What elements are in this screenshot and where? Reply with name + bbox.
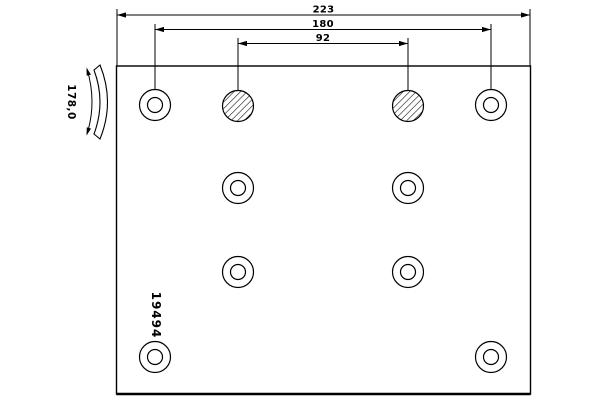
rivet-hole-outer bbox=[223, 257, 254, 288]
rivet-hole-outer bbox=[223, 173, 254, 204]
technical-drawing-canvas: 223 180 92 178,0 1949 bbox=[0, 0, 600, 400]
rivet-hole-outer bbox=[476, 342, 507, 373]
dimension-label-inner: 92 bbox=[316, 33, 331, 44]
dimension-arrow bbox=[117, 12, 126, 17]
dimension-arrow bbox=[482, 27, 491, 32]
curvature-symbol: 178,0 bbox=[65, 65, 108, 139]
dimension-arrow bbox=[238, 41, 247, 46]
dimension-arrow bbox=[521, 12, 530, 17]
rivet-hole-inner bbox=[231, 265, 246, 280]
hatched-hole bbox=[223, 91, 254, 122]
rivet-hole-outer bbox=[140, 90, 171, 121]
rivet-hole-outer bbox=[476, 90, 507, 121]
part-number-label: 19494 bbox=[149, 292, 163, 339]
dimension-label-outer: 180 bbox=[312, 19, 334, 30]
rivet-hole-inner bbox=[484, 350, 499, 365]
lining-cross-section bbox=[94, 65, 108, 139]
rivet-hole-inner bbox=[401, 265, 416, 280]
rivet-hole-inner bbox=[148, 350, 163, 365]
curvature-arrow-bottom bbox=[87, 127, 92, 135]
curvature-arrow-top bbox=[87, 68, 91, 76]
rivet-hole-inner bbox=[484, 98, 499, 113]
rivet-hole-inner bbox=[231, 181, 246, 196]
dimension-inner-holes: 92 bbox=[238, 33, 408, 91]
rivet-hole-inner bbox=[148, 98, 163, 113]
dimension-arrow bbox=[399, 41, 408, 46]
hatched-hole bbox=[393, 91, 424, 122]
curvature-radius-label: 178,0 bbox=[65, 84, 77, 120]
rivet-hole-inner bbox=[401, 181, 416, 196]
brake-lining-drawing: 223 180 92 178,0 1949 bbox=[0, 0, 600, 400]
dimension-label-total: 223 bbox=[313, 5, 335, 16]
rivet-hole-outer bbox=[140, 342, 171, 373]
dimension-arrow bbox=[155, 27, 164, 32]
holes-layer bbox=[140, 90, 507, 373]
dimension-outer-holes: 180 bbox=[155, 19, 491, 90]
curvature-dimension-arc bbox=[87, 69, 92, 134]
rivet-hole-outer bbox=[393, 173, 424, 204]
rivet-hole-outer bbox=[393, 257, 424, 288]
lining-plate-outline bbox=[117, 66, 531, 394]
